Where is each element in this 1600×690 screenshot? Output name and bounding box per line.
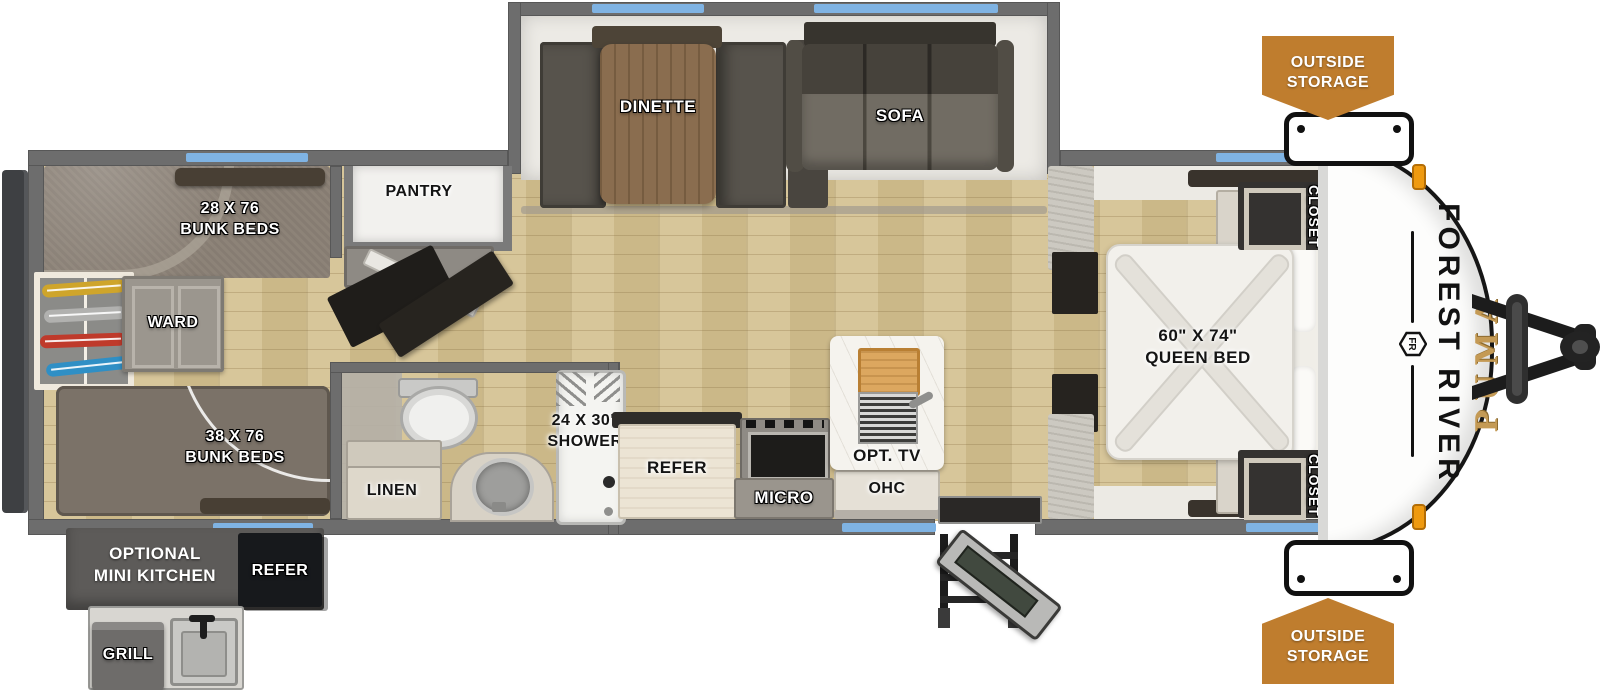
- bed-size-label: 60" X 74": [1106, 326, 1290, 346]
- slideout-wall-right: [1047, 2, 1060, 174]
- dinette-bench-left: [540, 42, 606, 208]
- pantry-label: PANTRY: [344, 183, 494, 201]
- pantry: [344, 166, 512, 251]
- bath-faucet: [492, 502, 506, 512]
- grill-label: GRILL: [92, 646, 164, 664]
- top-bunk-size-label: 28 X 76: [130, 200, 330, 218]
- bed-label: QUEEN BED: [1106, 348, 1290, 368]
- shower-head-lines-right: [594, 372, 620, 402]
- top-bunk-board: [175, 168, 325, 186]
- bottom-bunk-label: BUNK BEDS: [135, 449, 335, 467]
- outside-storage-badge-top: OUTSIDE STORAGE: [1262, 36, 1394, 120]
- bedroom-divider-gable-bottom: [1048, 414, 1094, 519]
- bunkroom-top-window: [186, 153, 308, 162]
- clearance-light-bottom: [1412, 504, 1426, 530]
- forest-river-hex-logo-icon: FR: [1399, 331, 1427, 357]
- outside-storage-top-line1: OUTSIDE: [1262, 53, 1394, 73]
- outside-storage-bottom-line1: OUTSIDE: [1262, 627, 1394, 647]
- bunkroom-wall-lower: [330, 366, 342, 519]
- mini-kitchen-sink: [170, 618, 238, 686]
- shower-head-lines-left: [556, 372, 586, 406]
- outside-storage-badge-bottom: OUTSIDE STORAGE: [1262, 598, 1394, 684]
- bedroom-dresser-top: [1052, 252, 1098, 314]
- mini-kitchen-refer-label: REFER: [238, 562, 322, 580]
- sofa-label: SOFA: [802, 106, 998, 126]
- opt-tv-label: OPT. TV: [830, 446, 944, 466]
- slideout-wall-left: [508, 2, 521, 174]
- storage-door-bottom: [1284, 540, 1414, 596]
- sofa-backrest: [802, 44, 998, 96]
- floorplan-canvas: DINETTE SOFA 28 X 76 BUNK BEDS WARD 38 X…: [0, 0, 1600, 690]
- ohc-sill: [834, 510, 940, 519]
- dinette-table: [600, 44, 716, 204]
- linen-label: LINEN: [346, 482, 438, 500]
- range-cooktop: [740, 418, 830, 480]
- forest-river-wordmark: FOREST RIVER: [1431, 203, 1465, 485]
- dinette-label: DINETTE: [600, 97, 716, 117]
- svg-text:FR: FR: [1406, 337, 1417, 351]
- bottom-bunk-board: [200, 498, 330, 514]
- clearance-light-top: [1412, 164, 1426, 190]
- kitchen-bottom-window: [842, 523, 936, 532]
- sofa-armrest-right: [996, 40, 1014, 172]
- wardrobe-label: WARD: [122, 314, 224, 332]
- dinette-bench-right: [716, 42, 786, 208]
- slideout-window-left: [592, 4, 704, 13]
- storage-door-top: [1284, 112, 1414, 166]
- bottom-bunk-size-label: 38 X 76: [135, 428, 335, 446]
- outside-storage-top-line2: STORAGE: [1262, 73, 1394, 93]
- top-bunk-label: BUNK BEDS: [130, 221, 330, 239]
- rear-bumper: [2, 170, 28, 513]
- sofa-back-console: [804, 22, 996, 46]
- micro-label: MICRO: [734, 488, 834, 508]
- mini-kitchen-line2: MINI KITCHEN: [72, 566, 238, 586]
- cutting-board: [858, 348, 920, 396]
- ohc-label: OHC: [834, 480, 940, 498]
- logo-line-right: [1412, 365, 1415, 457]
- sink-grate: [858, 392, 918, 444]
- entry-threshold: [938, 496, 1042, 524]
- slideout-window-right: [814, 4, 998, 13]
- bunkroom-wall-upper: [330, 166, 342, 258]
- forest-river-logo-row: FR: [1399, 231, 1427, 457]
- outside-storage-bottom-line2: STORAGE: [1262, 647, 1394, 667]
- mini-kitchen-line1: OPTIONAL: [72, 544, 238, 564]
- refer-label: REFER: [618, 458, 736, 478]
- hitch-assembly: [1462, 272, 1600, 422]
- logo-line-left: [1412, 231, 1415, 323]
